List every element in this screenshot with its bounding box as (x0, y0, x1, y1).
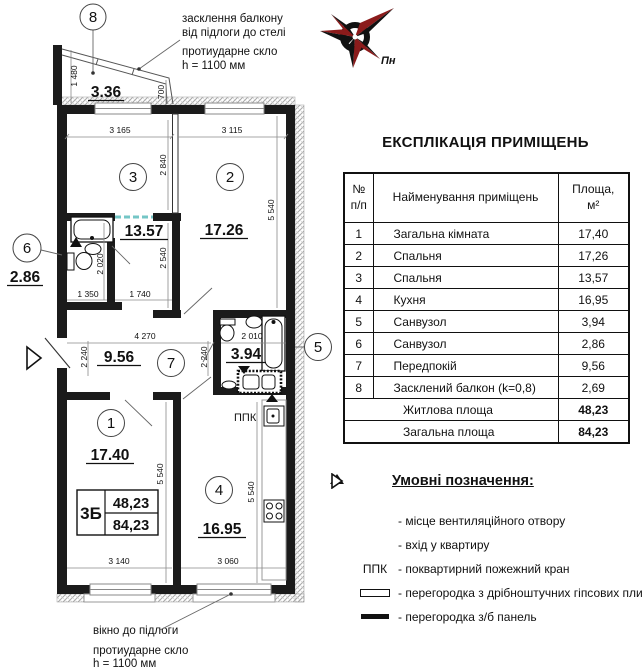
table-row: 5 Санвузол 3,94 (344, 311, 629, 333)
summary-name: Житлова площа (344, 399, 558, 421)
room-circle-6: 6 (13, 234, 41, 262)
summary-name: Загальна площа (344, 421, 558, 444)
room-circle-1: 1 (98, 410, 125, 437)
legend-item-text: - перегородка з/б панель (398, 610, 537, 624)
wall-bath6-bottom (57, 302, 122, 310)
dim-1740: 1 740 (129, 289, 151, 299)
row-name: Загальна кімната (373, 223, 558, 245)
wall-balcony-left (53, 45, 62, 105)
wall-hall-room1-b (153, 392, 181, 400)
entry-door-swing (45, 338, 70, 368)
dim-3060: 3 060 (217, 556, 239, 566)
bathroom6-fixtures (67, 217, 113, 270)
room-number-4: 4 (215, 482, 223, 499)
row-name: Засклений балкон (k=0,8) (373, 377, 558, 399)
row-name: Санвузол (373, 311, 558, 333)
row-area: 17,26 (558, 245, 629, 267)
explication-table: № п/п Найменування приміщень Площа, м² 1… (343, 172, 630, 444)
compass-rose-icon: Пн (320, 8, 396, 68)
table-title: ЕКСПЛІКАЦІЯ ПРИМІЩЕНЬ (343, 134, 628, 151)
legend-item-panel: - перегородка з/б панель (330, 609, 638, 624)
row-area: 2,69 (558, 377, 629, 399)
balcony-annotation: засклення балкону від підлоги до стелі п… (137, 13, 285, 72)
kitchen-counter (262, 400, 286, 580)
legend-item-ppk: ППК - поквартирний пожежний кран (330, 561, 638, 576)
table-row: 1 Загальна кімната 17,40 (344, 223, 629, 245)
dim-2020: 2 020 (95, 253, 105, 275)
row-area: 13,57 (558, 267, 629, 289)
row-area: 3,94 (558, 311, 629, 333)
row-name: Спальня (373, 267, 558, 289)
area-room3: 13.57 (125, 223, 164, 240)
room1-door-swing (125, 400, 152, 426)
legend-item-gypsum: - перегородка з дрібноштучних гіпсових п… (330, 585, 638, 600)
room-circle-8: 8 (80, 4, 106, 30)
toilet-icon (220, 319, 235, 341)
wall-hall-room1-a (57, 392, 110, 400)
bathtub-icon (71, 217, 113, 242)
header-name: Найменування приміщень (373, 173, 558, 223)
row-area: 2,86 (558, 333, 629, 355)
window-bottom-2 (193, 584, 275, 602)
dim-2240-left: 2 240 (79, 346, 89, 368)
row-num: 2 (344, 245, 373, 267)
room-number-8: 8 (89, 9, 97, 26)
wall-stub-b (153, 310, 181, 318)
entry-arrow-icon (27, 347, 41, 369)
kitchen-sink-icon (264, 406, 284, 426)
legend-item-text: - перегородка з дрібноштучних гіпсових п… (398, 586, 642, 600)
table-row: 7 Передпокій 9,56 (344, 355, 629, 377)
area-hall: 9.56 (104, 349, 135, 366)
table-row: 4 Кухня 16,95 (344, 289, 629, 311)
summary-row-living: Житлова площа 48,23 (344, 399, 629, 421)
legend-item-text: - вхід у квартиру (398, 538, 489, 552)
summary-row-total: Загальна площа 84,23 (344, 421, 629, 444)
header-num: № п/п (344, 173, 373, 223)
dim-4270: 4 270 (134, 331, 156, 341)
washing-machine-icon (238, 371, 281, 393)
dim-5540-kitchen: 5 540 (246, 481, 256, 503)
row-num: 1 (344, 223, 373, 245)
vent-triangle-icon (266, 394, 278, 402)
room-circle-7: 7 (158, 350, 185, 377)
legend-item-vent: - місце вентиляційного отвору (330, 513, 638, 528)
dim-5540-room1: 5 540 (155, 463, 165, 485)
room-circle-4: 4 (206, 477, 233, 504)
row-num: 6 (344, 333, 373, 355)
toilet-icon (67, 253, 92, 271)
area-room1: 17.40 (91, 447, 130, 464)
window-note-line2: протиударне скло (93, 645, 188, 657)
window-bottom-1 (84, 584, 155, 602)
dim-3165: 3 165 (109, 125, 131, 135)
table-row: 2 Спальня 17,26 (344, 245, 629, 267)
room-number-5: 5 (314, 339, 322, 356)
row-name: Спальня (373, 245, 558, 267)
area-kitchen: 16.95 (203, 521, 242, 538)
room-circle-3: 3 (120, 164, 147, 191)
window-top-2 (205, 103, 264, 114)
header-area: Площа, м² (558, 173, 629, 223)
wall-left-lower (57, 368, 67, 594)
row-num: 8 (344, 377, 373, 399)
table-header-row: № п/п Найменування приміщень Площа, м² (344, 173, 629, 223)
legend-item-entry: - вхід у квартиру (330, 537, 638, 552)
ppk-plan-label: ППК (234, 412, 257, 424)
legend-item-text: - місце вентиляційного отвору (398, 514, 565, 528)
row-name: Передпокій (373, 355, 558, 377)
legend-item-text: - поквартирний пожежний кран (398, 562, 570, 576)
floor-plan-sheet: 1 480 700 3 165 3 115 2 840 5 540 2 020 … (0, 0, 642, 670)
summary-area: 48,23 (558, 399, 629, 421)
row-name: Санвузол (373, 333, 558, 355)
row-area: 17,40 (558, 223, 629, 245)
sink-icon (246, 316, 262, 328)
stamp-total-area: 84,23 (113, 518, 149, 534)
stamp-living-area: 48,23 (113, 496, 149, 512)
small-sink-icon (222, 381, 236, 389)
dim-2840: 2 840 (158, 154, 168, 176)
kitchen-door-swing (183, 377, 211, 399)
dim-3140: 3 140 (108, 556, 130, 566)
dim-700: 700 (156, 85, 166, 99)
room-circle-2: 2 (217, 164, 244, 191)
dim-3115: 3 115 (222, 125, 243, 135)
dim-1480: 1 480 (69, 65, 79, 87)
kitchen-fixtures (262, 394, 286, 580)
area-room2: 17.26 (205, 222, 244, 239)
room-number-3: 3 (129, 169, 137, 186)
room2-door-swing (184, 288, 212, 314)
table-row: 3 Спальня 13,57 (344, 267, 629, 289)
dim-2540: 2 540 (158, 247, 168, 269)
row-num: 5 (344, 311, 373, 333)
explication-section: ЕКСПЛІКАЦІЯ ПРИМІЩЕНЬ № п/п Найменування… (343, 134, 628, 444)
table-row: 8 Засклений балкон (k=0,8) 2,69 (344, 377, 629, 399)
dim-2010: 2 010 (241, 331, 263, 341)
row-area: 9,56 (558, 355, 629, 377)
dim-1350: 1 350 (77, 289, 99, 299)
legend-title: Умовні позначення: (392, 473, 638, 489)
wall-vert-mid (172, 213, 180, 318)
window-note-line3: h = 1100 мм (93, 658, 156, 670)
legend-section: Умовні позначення: - місце вентиляційног… (330, 473, 638, 633)
compass-north-label: Пн (381, 55, 396, 67)
window-annotation: вікно до підлоги протиударне скло h = 11… (93, 592, 233, 670)
balcony-note-line1: засклення балкону (182, 13, 283, 25)
ppk-symbol: ППК (360, 562, 390, 576)
wall-right (286, 105, 295, 594)
dim-5540-right: 5 540 (266, 199, 276, 221)
room-circle-5: 5 (305, 334, 332, 361)
room-number-7: 7 (167, 355, 175, 372)
summary-area: 84,23 (558, 421, 629, 444)
apartment-type: 3Б (80, 504, 102, 523)
wall-room1-kitchen (173, 400, 181, 594)
gypsum-partition-room3-room2 (173, 114, 179, 213)
area-bath6: 2.86 (10, 269, 41, 286)
row-num: 4 (344, 289, 373, 311)
concrete-panel-icon (360, 614, 390, 619)
apartment-stamp: 3Б 48,23 84,23 (77, 490, 158, 535)
table-row: 6 Санвузол 2,86 (344, 333, 629, 355)
balcony-note-line3: протиударне скло (182, 46, 277, 58)
area-balcony: 3.36 (91, 84, 122, 101)
balcony-note-line4: h = 1100 мм (182, 60, 245, 72)
gypsum-partition-icon (360, 589, 390, 597)
row-area: 16,95 (558, 289, 629, 311)
balcony-note-line2: від підлоги до стелі (182, 27, 286, 39)
room-number-2: 2 (226, 169, 234, 186)
window-top-1 (95, 103, 151, 114)
row-num: 7 (344, 355, 373, 377)
dim-2240-mid: 2 240 (199, 346, 209, 368)
room-number-1: 1 (107, 415, 115, 432)
area-bath5: 3.94 (231, 346, 262, 363)
row-name: Кухня (373, 289, 558, 311)
row-num: 3 (344, 267, 373, 289)
room-number-6: 6 (23, 240, 31, 257)
